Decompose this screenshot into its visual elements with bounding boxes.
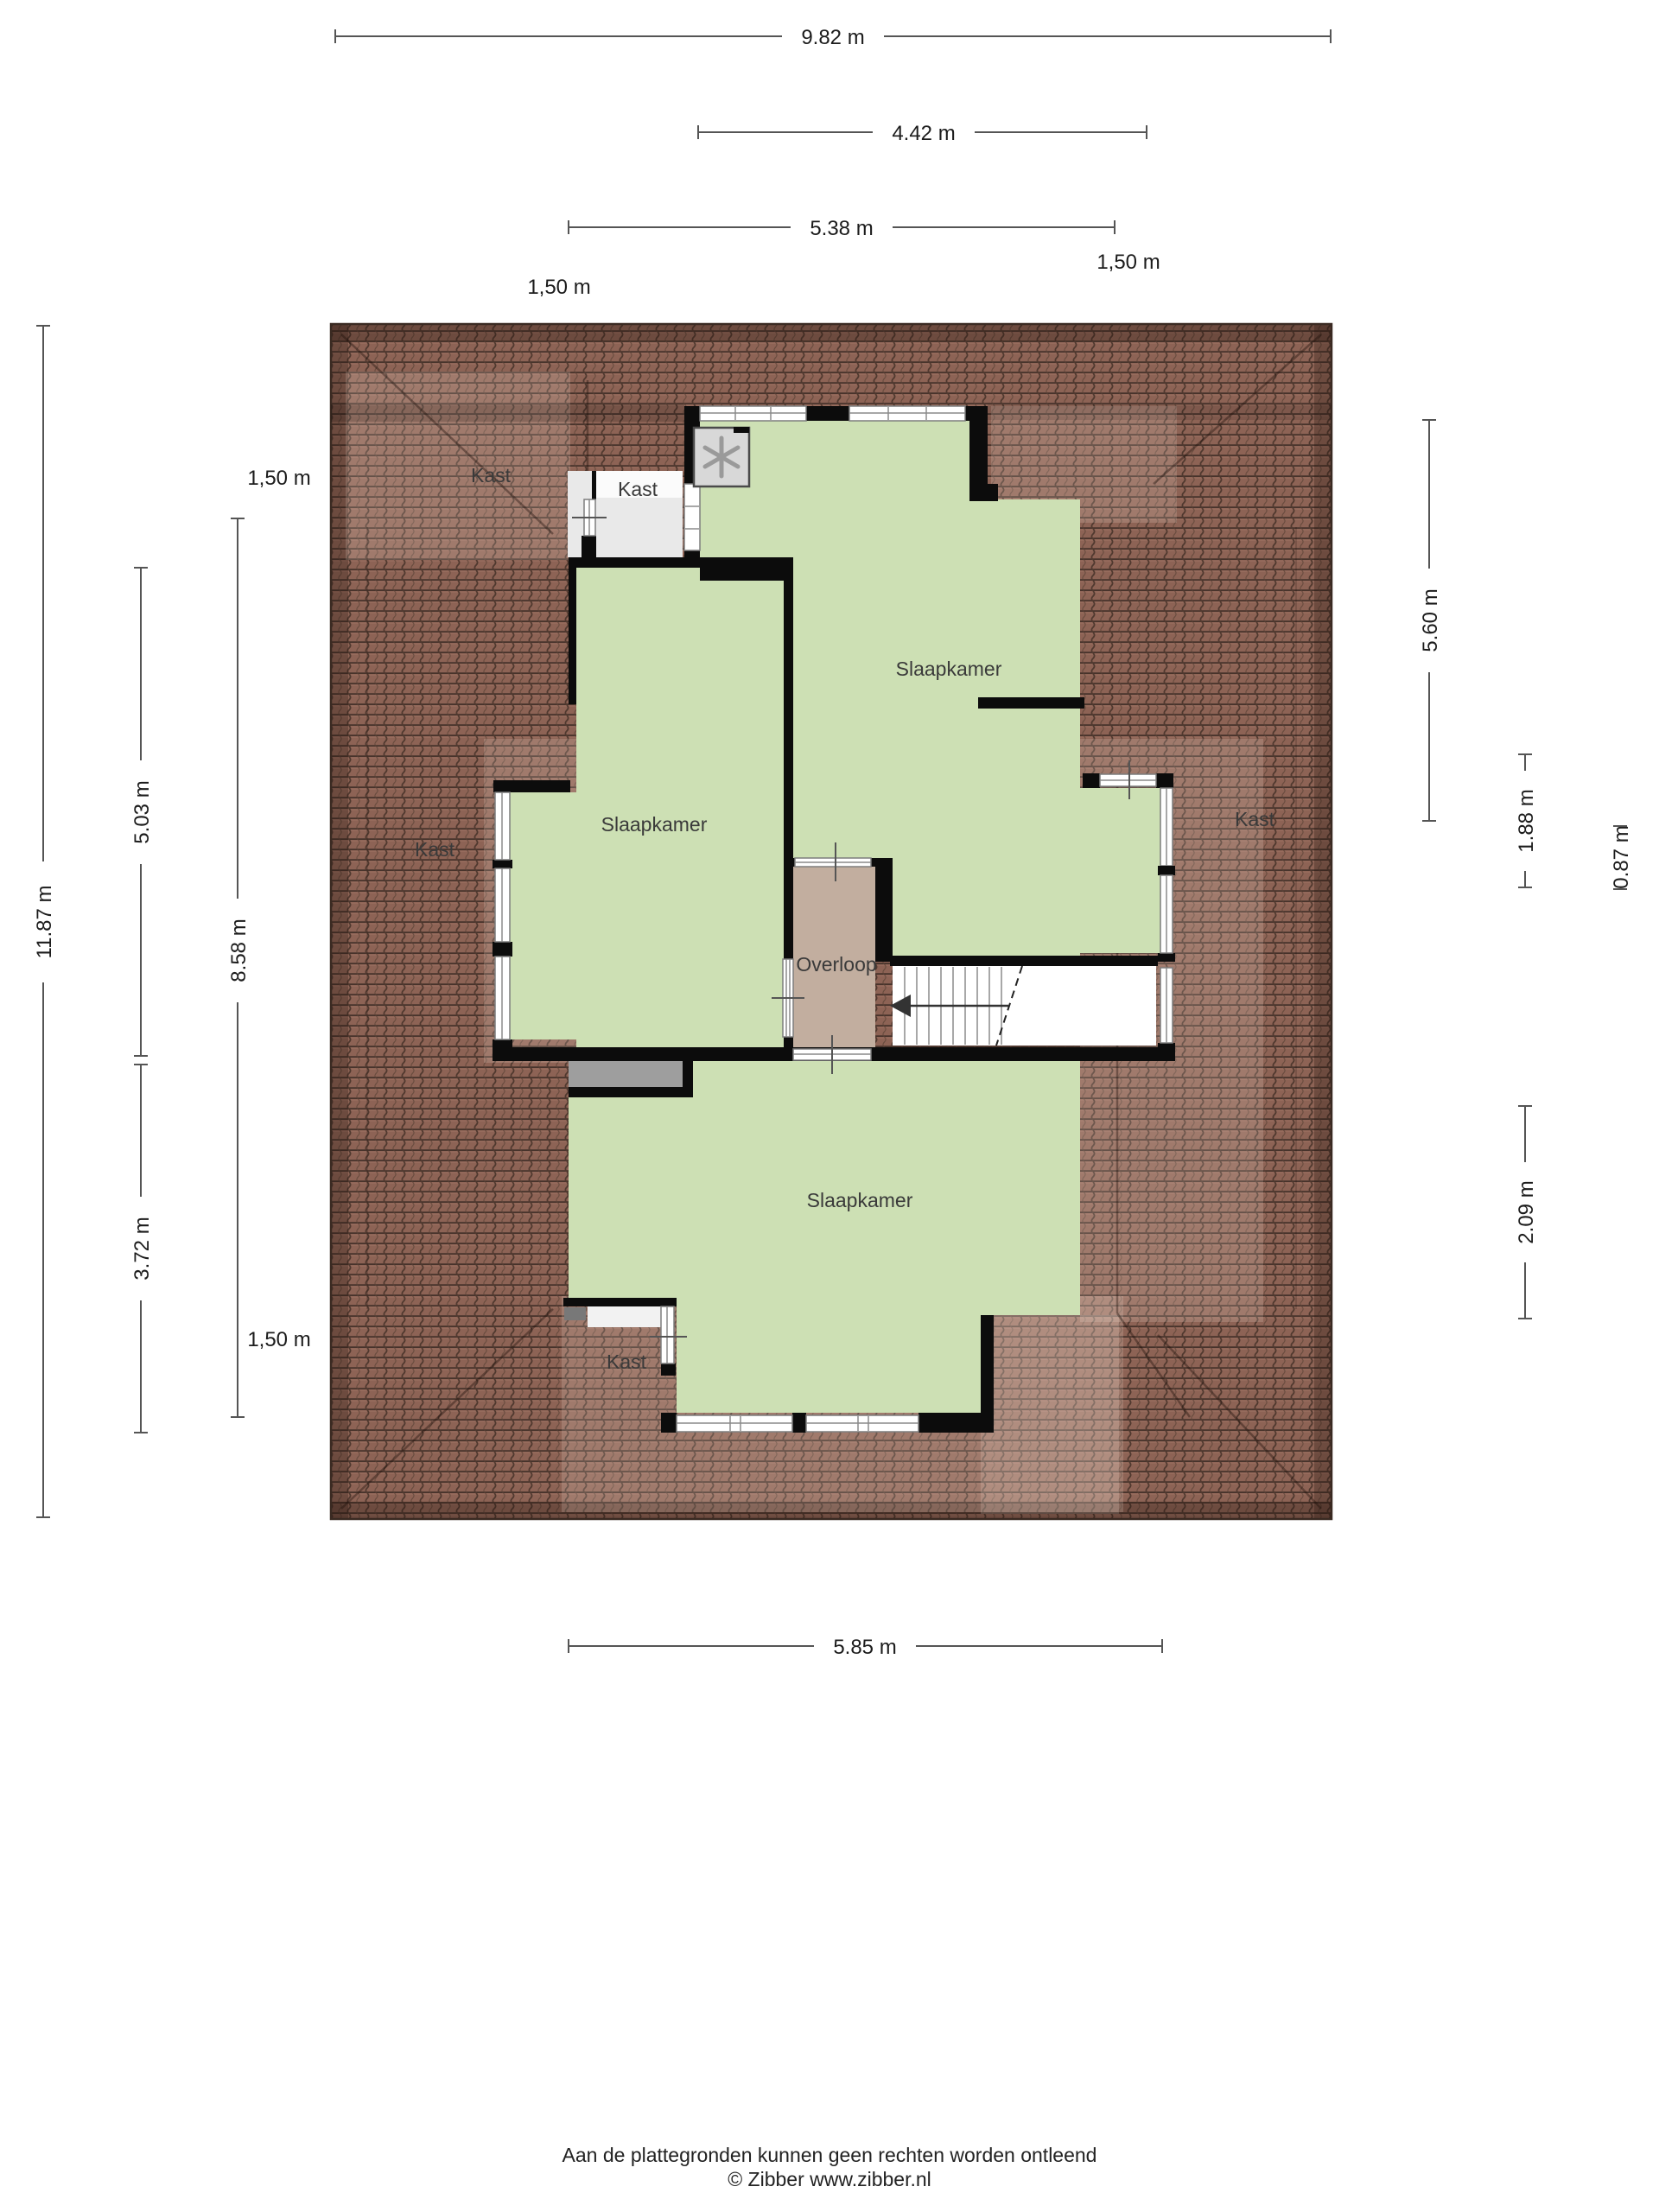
svg-text:1.88 m: 1.88 m xyxy=(1515,789,1538,852)
floorplan-page: Slaapkamer Slaapkamer Slaapkamer Overloo… xyxy=(0,0,1659,2212)
dim-right-height: 5.60 m xyxy=(1416,420,1444,821)
svg-text:5.60 m: 5.60 m xyxy=(1419,588,1442,652)
window-bottom-2 xyxy=(806,1415,918,1432)
label-closet-bottom: Kast xyxy=(607,1351,647,1373)
svg-text:5.85 m: 5.85 m xyxy=(833,1636,896,1659)
window-stair-landing-right xyxy=(1160,968,1173,1043)
footer: Aan de plattegronden kunnen geen rechten… xyxy=(563,2144,1097,2190)
dim-upper-width: 4.42 m xyxy=(698,118,1147,146)
label-bedroom-bottom: Slaapkamer xyxy=(807,1189,913,1211)
dim-offset-top-left: 1,50 m xyxy=(527,276,590,299)
dim-mid-width: 5.38 m xyxy=(569,213,1115,241)
label-closet-top: Kast xyxy=(618,478,658,500)
dim-bottom-width: 5.85 m xyxy=(569,1632,1162,1660)
dim-right-small-height: 0.87 m xyxy=(1610,825,1633,889)
svg-text:9.82 m: 9.82 m xyxy=(801,26,864,49)
dim-total-width: 9.82 m xyxy=(335,22,1331,50)
dim-left-inner-height: 8.58 m xyxy=(225,518,252,1417)
window-nook-right xyxy=(1158,788,1175,953)
svg-text:0.87 m: 0.87 m xyxy=(1610,825,1633,888)
label-closet-roof-right: Kast xyxy=(1235,808,1275,830)
svg-text:5.03 m: 5.03 m xyxy=(130,780,154,843)
vent-unit xyxy=(694,427,749,486)
svg-text:3.72 m: 3.72 m xyxy=(130,1217,154,1280)
window-top-1 xyxy=(700,406,806,421)
door-top-bedroom xyxy=(684,484,700,550)
dim-left-upper-height: 5.03 m xyxy=(128,568,156,1056)
dim-offset-left-bottom: 1,50 m xyxy=(247,1328,310,1351)
dim-offset-top-right: 1,50 m xyxy=(1096,251,1160,274)
svg-text:2.09 m: 2.09 m xyxy=(1515,1180,1538,1243)
footer-disclaimer: Aan de plattegronden kunnen geen rechten… xyxy=(563,2144,1097,2166)
dim-offset-left-top: 1,50 m xyxy=(247,467,310,490)
label-closet-roof-top-left: Kast xyxy=(471,464,512,486)
rooms xyxy=(510,421,1160,1413)
dim-right-lower-height: 2.09 m xyxy=(1512,1106,1540,1319)
svg-text:5.38 m: 5.38 m xyxy=(810,217,873,240)
label-bedroom-top: Slaapkamer xyxy=(896,658,1002,680)
floorplan-svg: Slaapkamer Slaapkamer Slaapkamer Overloo… xyxy=(0,0,1659,2212)
window-left-dormer xyxy=(495,792,510,1039)
label-landing: Overloop xyxy=(796,953,876,976)
svg-text:11.87 m: 11.87 m xyxy=(33,886,56,959)
label-closet-roof-left: Kast xyxy=(415,838,455,861)
label-bedroom-left: Slaapkamer xyxy=(601,813,708,836)
dim-total-height: 11.87 m xyxy=(30,326,58,1517)
footer-copyright: © Zibber www.zibber.nl xyxy=(728,2168,931,2190)
dim-right-nook-height: 1.88 m xyxy=(1512,754,1540,887)
room-closet-bottom-floor xyxy=(588,1306,663,1327)
svg-text:8.58 m: 8.58 m xyxy=(227,918,251,982)
window-top-2 xyxy=(849,406,965,421)
dim-left-lower-height: 3.72 m xyxy=(128,1065,156,1433)
window-bottom-1 xyxy=(677,1415,792,1432)
void-notch xyxy=(569,1060,683,1087)
closet-bottom-dark-patch xyxy=(564,1307,586,1320)
svg-text:4.42 m: 4.42 m xyxy=(892,122,955,145)
